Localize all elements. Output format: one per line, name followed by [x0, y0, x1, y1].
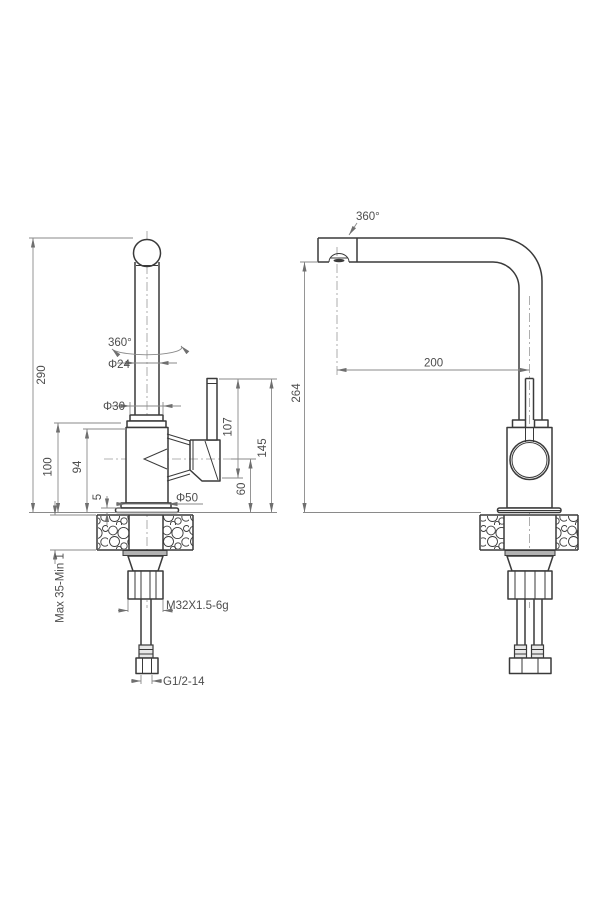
label-overall-height: 290: [36, 365, 48, 384]
front-base-plate: [116, 508, 179, 513]
front-washer: [123, 551, 167, 556]
front-body: [126, 428, 168, 504]
label-mounting-thread: M32X1.5-6g: [166, 600, 229, 612]
front-handle-housing: [190, 440, 220, 481]
label-handle-top-height: 145: [257, 438, 269, 457]
side-hose-fittings: [510, 658, 552, 674]
side-hose-band-right: [532, 645, 544, 658]
label-spout-pipe-diameter: Φ24: [108, 359, 131, 371]
front-counter-hatch-right: [164, 516, 193, 549]
side-cone: [507, 556, 553, 571]
front-cone: [128, 556, 163, 571]
dimension-labels: 290 100 94 5 Max 35-Min 1 107 60 145 360…: [36, 211, 443, 688]
side-dimensions: [300, 223, 530, 513]
front-wedge-bottom: [167, 470, 190, 481]
faucet-drawing-canvas: 290 100 94 5 Max 35-Min 1 107 60 145 360…: [0, 0, 600, 900]
label-inlet-thread: G1/2-14: [163, 676, 205, 688]
front-base-ring: [130, 415, 163, 421]
side-hose-band-left: [515, 645, 527, 658]
ext-m32: [128, 600, 163, 612]
ext-g12: [141, 675, 152, 684]
side-counter-hatch-right: [557, 516, 578, 549]
label-body-top-height: 100: [43, 457, 55, 476]
technical-drawing: 290 100 94 5 Max 35-Min 1 107 60 145 360…: [0, 0, 600, 900]
side-washer: [505, 551, 555, 556]
side-swivel-leader: [349, 223, 357, 235]
label-front-swivel: 360°: [108, 337, 132, 349]
centerlines: [104, 231, 530, 608]
side-spout-outer: [318, 238, 542, 420]
label-spout-reach: 200: [424, 358, 443, 370]
front-flange-band: [127, 421, 166, 428]
label-counter-thickness: Max 35-Min 1: [55, 553, 67, 623]
front-pipe-collar: [139, 645, 153, 658]
label-pivot-height: 60: [236, 483, 248, 496]
side-collar-right: [535, 420, 549, 428]
label-body-height: 94: [72, 460, 84, 473]
front-mount-nut: [128, 571, 163, 599]
front-inlet-pipe: [141, 599, 151, 645]
label-base-ring-diameter: Φ30: [103, 401, 125, 413]
front-spout-head: [134, 240, 161, 267]
front-lever: [207, 379, 217, 441]
side-collar-left: [513, 420, 526, 428]
front-housing-seams: [193, 440, 218, 480]
label-body-diameter: Φ50: [176, 493, 198, 505]
side-aerator-outlet: [334, 259, 345, 262]
ext-counter: [50, 515, 96, 550]
side-counter-hatch-left: [481, 516, 504, 549]
label-handle-to-pivot: 107: [223, 417, 235, 436]
front-counter-hatch-left: [98, 516, 129, 549]
front-hex-fitting: [136, 658, 158, 674]
label-spout-height: 264: [291, 383, 303, 403]
label-side-swivel: 360°: [356, 211, 380, 223]
side-spout-inner: [357, 262, 519, 420]
label-base-plate-height: 5: [92, 494, 104, 500]
front-wedge-top: [167, 434, 190, 445]
side-view: [318, 238, 578, 674]
